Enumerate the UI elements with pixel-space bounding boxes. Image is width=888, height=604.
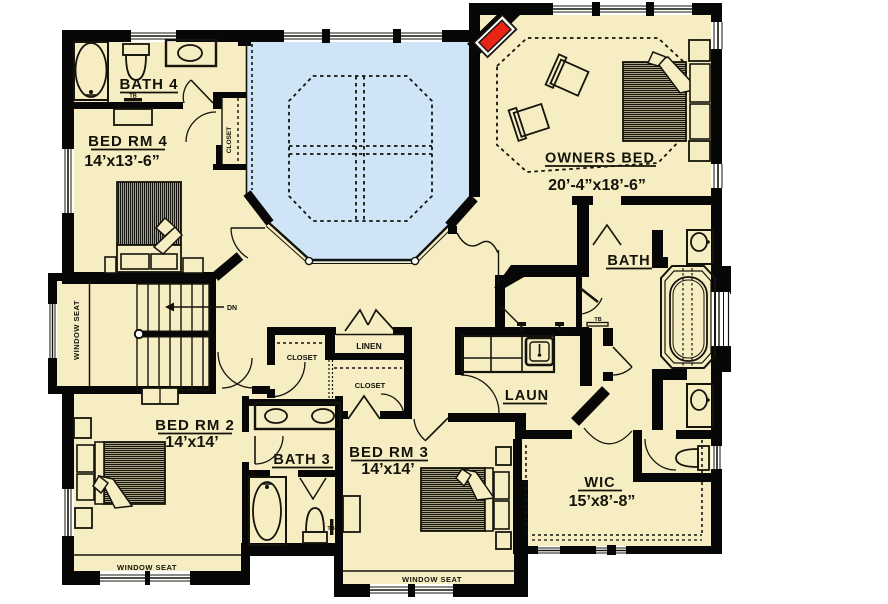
svg-text:14’x13’-6”: 14’x13’-6” [84, 153, 160, 170]
svg-text:WIC: WIC [584, 475, 615, 491]
svg-text:DN: DN [227, 305, 237, 312]
svg-text:BED RM 2: BED RM 2 [155, 417, 235, 434]
svg-text:CLOSET: CLOSET [226, 127, 233, 153]
svg-text:BATH: BATH [607, 253, 650, 269]
svg-text:WINDOW SEAT: WINDOW SEAT [402, 575, 462, 584]
svg-text:14’x14’: 14’x14’ [165, 434, 218, 451]
svg-text:TB: TB [327, 526, 334, 532]
svg-text:14’x14’: 14’x14’ [361, 461, 414, 478]
svg-text:BED RM 4: BED RM 4 [88, 133, 168, 150]
svg-text:15’x8’-8”: 15’x8’-8” [569, 493, 636, 510]
svg-text:BATH 4: BATH 4 [119, 76, 178, 93]
svg-text:OWNERS BED: OWNERS BED [545, 151, 655, 167]
svg-text:CLOSET: CLOSET [355, 381, 386, 390]
svg-text:BATH 3: BATH 3 [273, 452, 330, 468]
svg-text:WINDOW SEAT: WINDOW SEAT [72, 300, 81, 360]
svg-text:LAUN: LAUN [505, 388, 549, 404]
svg-text:TB: TB [129, 94, 136, 100]
svg-text:BED RM 3: BED RM 3 [349, 444, 429, 461]
svg-text:LINEN: LINEN [356, 341, 382, 351]
svg-text:CLOSET: CLOSET [287, 353, 318, 362]
svg-text:TB: TB [594, 317, 601, 323]
svg-text:20’-4”x18’-6”: 20’-4”x18’-6” [548, 177, 646, 194]
svg-text:WINDOW SEAT: WINDOW SEAT [117, 563, 177, 572]
